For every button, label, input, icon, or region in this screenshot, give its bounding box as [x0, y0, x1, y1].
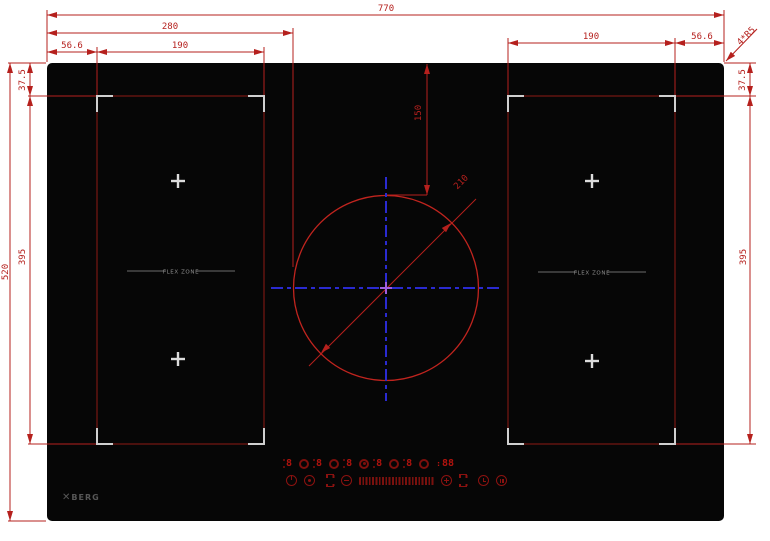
dimension-lines: [10, 15, 757, 521]
burner-display-3: 8: [346, 458, 352, 469]
burner-select-3-icon[interactable]: [359, 459, 369, 469]
dim-circle-diameter: 210: [452, 173, 471, 192]
timer-colon: :: [436, 459, 441, 468]
burner-display-5: 8: [406, 458, 412, 469]
dim-circle-top-offset: 150: [414, 105, 424, 121]
installation-drawing: FLEX ZONE FLEX ZONE 770 280 56.6 190 190…: [0, 0, 770, 541]
dim-left-zone-width: 190: [172, 41, 188, 51]
dim-circle-left-offset: 280: [162, 22, 178, 32]
burner-display-4: 8: [376, 458, 382, 469]
dim-left-zone-height: 395: [18, 249, 28, 265]
flex-zone-label-right: FLEX ZONE: [574, 271, 610, 277]
pause-icon[interactable]: [496, 475, 507, 486]
dim-total-width: 770: [378, 4, 394, 14]
timer-icon[interactable]: [478, 475, 489, 486]
burner-display-2: 8: [316, 458, 322, 469]
brand-logo-mark: ✕: [62, 492, 70, 503]
brand-logo-text: BERG: [71, 493, 99, 502]
dim-left-top-gap: 37.5: [18, 69, 28, 91]
dim-right-zone-width: 190: [583, 32, 599, 42]
dim-right-gap: 56.6: [691, 32, 713, 42]
dim-right-top-gap: 37.5: [738, 69, 748, 91]
minus-icon[interactable]: [341, 475, 352, 486]
dim-corner-radius-note: 4*R5: [735, 25, 757, 47]
brand-logo: ✕ BERG: [62, 492, 100, 503]
burner-display-1: 8: [286, 458, 292, 469]
flex-zone-dividers: [127, 271, 646, 272]
power-icon[interactable]: [286, 475, 297, 486]
control-panel: 8 8 8 8 8 : 88: [286, 457, 507, 488]
burner-select-5-icon[interactable]: [419, 459, 429, 469]
burner-select-4-icon[interactable]: [389, 459, 399, 469]
bridge-right-icon[interactable]: [459, 474, 467, 487]
plus-icon[interactable]: [441, 475, 452, 486]
power-slider[interactable]: [359, 477, 434, 485]
dim-total-height: 520: [1, 264, 11, 280]
burner-select-2-icon[interactable]: [329, 459, 339, 469]
timer-digits: 88: [442, 458, 454, 469]
flex-zone-label-left: FLEX ZONE: [163, 270, 199, 276]
control-key-row: [286, 473, 507, 488]
lock-icon[interactable]: [304, 475, 315, 486]
burner-display-row: 8 8 8 8 8 : 88: [286, 457, 454, 470]
dim-left-gap: 56.6: [61, 41, 83, 51]
timer-display: : 88: [436, 458, 454, 469]
center-point-mark: [380, 282, 392, 294]
bridge-left-icon[interactable]: [326, 474, 334, 487]
dim-right-zone-height: 395: [739, 249, 749, 265]
burner-select-1-icon[interactable]: [299, 459, 309, 469]
